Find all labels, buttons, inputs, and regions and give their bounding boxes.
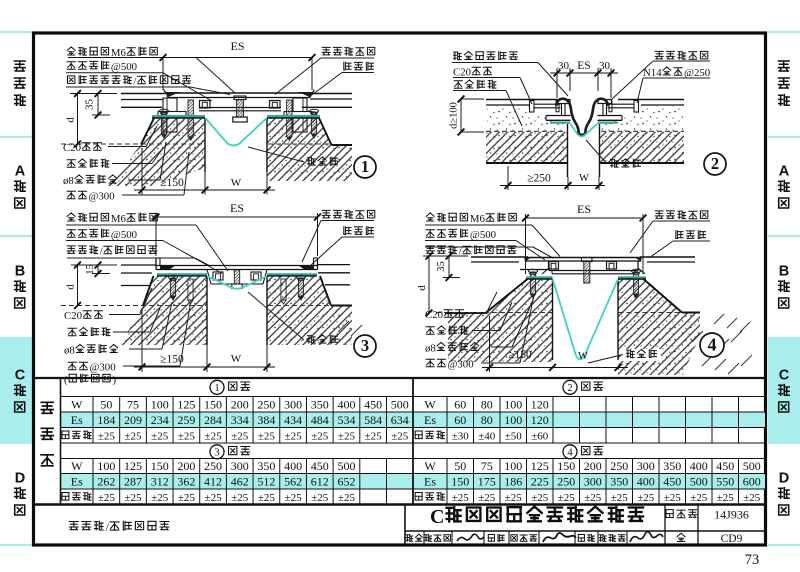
svg-text:W: W xyxy=(579,173,589,184)
svg-text:400: 400 xyxy=(637,475,655,489)
svg-text:±25: ±25 xyxy=(178,492,196,504)
svg-text:±25: ±25 xyxy=(478,492,496,504)
svg-text:75: 75 xyxy=(127,398,139,412)
svg-text:334: 334 xyxy=(231,413,249,427)
svg-text:400: 400 xyxy=(690,459,708,473)
svg-text:600: 600 xyxy=(743,475,761,489)
svg-text:d: d xyxy=(65,284,77,290)
svg-text:±25: ±25 xyxy=(311,492,329,504)
svg-text:/: / xyxy=(133,76,136,88)
svg-text:A: A xyxy=(15,164,26,180)
svg-text:60: 60 xyxy=(454,398,466,412)
svg-text:30: 30 xyxy=(558,60,570,72)
svg-text:150: 150 xyxy=(204,398,222,412)
svg-text:ES: ES xyxy=(577,202,591,216)
svg-text:±25: ±25 xyxy=(258,431,276,443)
svg-text:284: 284 xyxy=(204,413,222,427)
svg-text:50: 50 xyxy=(100,398,112,412)
svg-text:350: 350 xyxy=(663,459,681,473)
svg-text:±25: ±25 xyxy=(231,431,249,443)
svg-text:@250: @250 xyxy=(684,67,710,79)
svg-text:1: 1 xyxy=(361,157,369,176)
svg-text:±25: ±25 xyxy=(285,492,303,504)
svg-text:±25: ±25 xyxy=(178,431,196,443)
svg-text:M6: M6 xyxy=(111,47,127,59)
svg-text:CD9: CD9 xyxy=(721,533,743,545)
svg-text:125: 125 xyxy=(531,459,549,473)
svg-text:262: 262 xyxy=(97,475,115,489)
svg-text:≥250: ≥250 xyxy=(527,173,551,185)
svg-text:C: C xyxy=(430,506,444,528)
svg-text:ø8: ø8 xyxy=(63,175,74,187)
svg-text:125: 125 xyxy=(177,398,195,412)
svg-text:612: 612 xyxy=(311,475,329,489)
svg-text:d: d xyxy=(65,117,77,123)
svg-text:C: C xyxy=(779,368,790,384)
svg-text:350: 350 xyxy=(610,475,628,489)
svg-text:@500: @500 xyxy=(470,229,496,241)
svg-text:3: 3 xyxy=(214,448,219,459)
svg-text:@300: @300 xyxy=(447,359,473,371)
svg-text:±25: ±25 xyxy=(124,431,142,443)
svg-text:350: 350 xyxy=(311,398,329,412)
svg-text:±25: ±25 xyxy=(531,492,549,504)
svg-text:±30: ±30 xyxy=(452,431,470,443)
svg-text:B: B xyxy=(15,264,25,280)
svg-text:30: 30 xyxy=(599,60,611,72)
svg-text:100: 100 xyxy=(151,398,169,412)
svg-text:3: 3 xyxy=(361,336,369,355)
svg-text:100: 100 xyxy=(504,398,522,412)
svg-text:234: 234 xyxy=(151,413,169,427)
svg-text:±25: ±25 xyxy=(338,492,356,504)
svg-text:450: 450 xyxy=(663,475,681,489)
svg-text:≥150: ≥150 xyxy=(508,349,532,361)
svg-text:Es: Es xyxy=(424,475,436,489)
svg-text:d: d xyxy=(416,285,428,291)
svg-text:/: / xyxy=(100,246,103,258)
svg-text:150: 150 xyxy=(557,459,575,473)
svg-text:±25: ±25 xyxy=(690,492,708,504)
svg-text:Es: Es xyxy=(424,413,436,427)
svg-text:ø8: ø8 xyxy=(64,345,75,357)
svg-text:/: / xyxy=(459,246,462,258)
svg-text:1: 1 xyxy=(214,383,219,394)
svg-text:500: 500 xyxy=(743,459,761,473)
svg-text:C20: C20 xyxy=(64,310,82,322)
svg-text:@300: @300 xyxy=(88,191,114,203)
svg-text:W: W xyxy=(231,177,242,189)
svg-text:120: 120 xyxy=(531,413,549,427)
svg-text:412: 412 xyxy=(204,475,222,489)
svg-text:434: 434 xyxy=(284,413,302,427)
svg-text:W: W xyxy=(231,353,242,365)
svg-text:C20: C20 xyxy=(63,142,81,154)
svg-text:d≥100: d≥100 xyxy=(448,102,459,129)
svg-text:35: 35 xyxy=(436,261,447,272)
svg-text:400: 400 xyxy=(337,398,355,412)
svg-text:±25: ±25 xyxy=(151,492,169,504)
svg-text:14J936: 14J936 xyxy=(714,508,749,522)
svg-text:4: 4 xyxy=(708,335,717,355)
svg-text:300: 300 xyxy=(637,459,655,473)
svg-text:±25: ±25 xyxy=(452,492,470,504)
svg-text:±25: ±25 xyxy=(205,431,223,443)
svg-text:259: 259 xyxy=(177,413,195,427)
svg-text:±25: ±25 xyxy=(558,492,576,504)
svg-text:60: 60 xyxy=(454,413,466,427)
svg-text:186: 186 xyxy=(504,475,522,489)
svg-text:634: 634 xyxy=(391,413,409,427)
svg-text:W: W xyxy=(424,398,436,412)
svg-text:250: 250 xyxy=(204,459,222,473)
svg-text:200: 200 xyxy=(231,398,249,412)
svg-text:±25: ±25 xyxy=(258,492,276,504)
svg-text:500: 500 xyxy=(391,398,409,412)
svg-text:C: C xyxy=(15,368,26,384)
svg-text:±25: ±25 xyxy=(505,492,523,504)
svg-text:400: 400 xyxy=(284,459,302,473)
svg-text:362: 362 xyxy=(177,475,195,489)
svg-text:2: 2 xyxy=(567,383,572,394)
svg-text:100: 100 xyxy=(504,459,522,473)
svg-text:300: 300 xyxy=(231,459,249,473)
svg-text:±25: ±25 xyxy=(664,492,682,504)
svg-text:512: 512 xyxy=(257,475,275,489)
svg-text:250: 250 xyxy=(257,398,275,412)
svg-text:250: 250 xyxy=(610,459,628,473)
svg-text:150: 150 xyxy=(451,475,469,489)
svg-text:384: 384 xyxy=(257,413,275,427)
svg-text:450: 450 xyxy=(716,459,734,473)
svg-text:±25: ±25 xyxy=(311,431,329,443)
svg-text:462: 462 xyxy=(231,475,249,489)
svg-text:ES: ES xyxy=(230,201,244,215)
svg-text:450: 450 xyxy=(364,398,382,412)
svg-text:(: ( xyxy=(64,374,68,386)
svg-text:209: 209 xyxy=(124,413,142,427)
svg-text:484: 484 xyxy=(311,413,329,427)
svg-text:120: 120 xyxy=(531,398,549,412)
svg-text:±25: ±25 xyxy=(205,492,223,504)
svg-text:4: 4 xyxy=(567,448,573,459)
svg-text:±25: ±25 xyxy=(584,492,602,504)
svg-text:±25: ±25 xyxy=(717,492,735,504)
svg-text:±60: ±60 xyxy=(531,431,549,443)
svg-text:@500: @500 xyxy=(111,61,137,73)
svg-text:W: W xyxy=(578,351,588,362)
svg-text:350: 350 xyxy=(257,459,275,473)
svg-text:652: 652 xyxy=(337,475,355,489)
svg-text:300: 300 xyxy=(284,398,302,412)
svg-text:ø8: ø8 xyxy=(425,343,436,355)
svg-text:500: 500 xyxy=(690,475,708,489)
svg-text:184: 184 xyxy=(97,413,115,427)
svg-text:±25: ±25 xyxy=(365,431,383,443)
svg-text:450: 450 xyxy=(311,459,329,473)
svg-text:250: 250 xyxy=(557,475,575,489)
svg-text:): ) xyxy=(113,374,117,386)
svg-text:±25: ±25 xyxy=(124,492,142,504)
svg-text:C20: C20 xyxy=(425,309,443,321)
svg-text:W: W xyxy=(71,459,83,473)
svg-text:73: 73 xyxy=(745,552,760,568)
svg-text:150: 150 xyxy=(151,459,169,473)
svg-text:W: W xyxy=(71,398,83,412)
svg-text:±25: ±25 xyxy=(98,431,116,443)
svg-text:175: 175 xyxy=(478,475,496,489)
svg-text:287: 287 xyxy=(124,475,142,489)
svg-text:100: 100 xyxy=(504,413,522,427)
svg-text:±40: ±40 xyxy=(478,431,496,443)
svg-text:80: 80 xyxy=(481,413,493,427)
svg-text:100: 100 xyxy=(97,459,115,473)
svg-text:@500: @500 xyxy=(111,229,137,241)
svg-text:550: 550 xyxy=(716,475,734,489)
svg-text:562: 562 xyxy=(284,475,302,489)
svg-text:A: A xyxy=(779,164,790,180)
svg-text:ES: ES xyxy=(230,39,244,53)
svg-text:M6: M6 xyxy=(111,213,127,225)
svg-text:±25: ±25 xyxy=(391,431,409,443)
svg-text:534: 534 xyxy=(337,413,355,427)
svg-text:B: B xyxy=(779,264,789,280)
svg-text:ES: ES xyxy=(577,60,590,72)
svg-text:±25: ±25 xyxy=(285,431,303,443)
svg-text:15: 15 xyxy=(85,264,96,275)
svg-text:50: 50 xyxy=(454,459,466,473)
svg-text:75: 75 xyxy=(481,459,493,473)
svg-text:584: 584 xyxy=(364,413,382,427)
svg-text:≥150: ≥150 xyxy=(160,177,184,189)
svg-text:±25: ±25 xyxy=(98,492,116,504)
svg-text:M6: M6 xyxy=(470,213,486,225)
svg-text:200: 200 xyxy=(584,459,602,473)
svg-text:300: 300 xyxy=(584,475,602,489)
svg-text:Es: Es xyxy=(71,413,83,427)
svg-text:±25: ±25 xyxy=(231,492,249,504)
svg-text:125: 125 xyxy=(124,459,142,473)
svg-text:±25: ±25 xyxy=(611,492,629,504)
svg-text:500: 500 xyxy=(337,459,355,473)
svg-text:D: D xyxy=(15,471,25,487)
svg-text:225: 225 xyxy=(531,475,549,489)
svg-text:C20: C20 xyxy=(453,67,471,79)
svg-text:W: W xyxy=(424,459,436,473)
svg-text:±25: ±25 xyxy=(637,492,655,504)
svg-text:2: 2 xyxy=(711,154,719,173)
svg-text:N14: N14 xyxy=(643,67,662,79)
svg-text:±25: ±25 xyxy=(151,431,169,443)
svg-text:Es: Es xyxy=(71,475,83,489)
svg-text:±50: ±50 xyxy=(505,431,523,443)
svg-text:312: 312 xyxy=(151,475,169,489)
svg-text:200: 200 xyxy=(177,459,195,473)
svg-text:±25: ±25 xyxy=(338,431,356,443)
svg-text:@300: @300 xyxy=(89,362,115,374)
svg-text:±25: ±25 xyxy=(743,492,761,504)
svg-text:D: D xyxy=(779,471,789,487)
svg-text:80: 80 xyxy=(481,398,493,412)
svg-text:35: 35 xyxy=(84,99,96,111)
